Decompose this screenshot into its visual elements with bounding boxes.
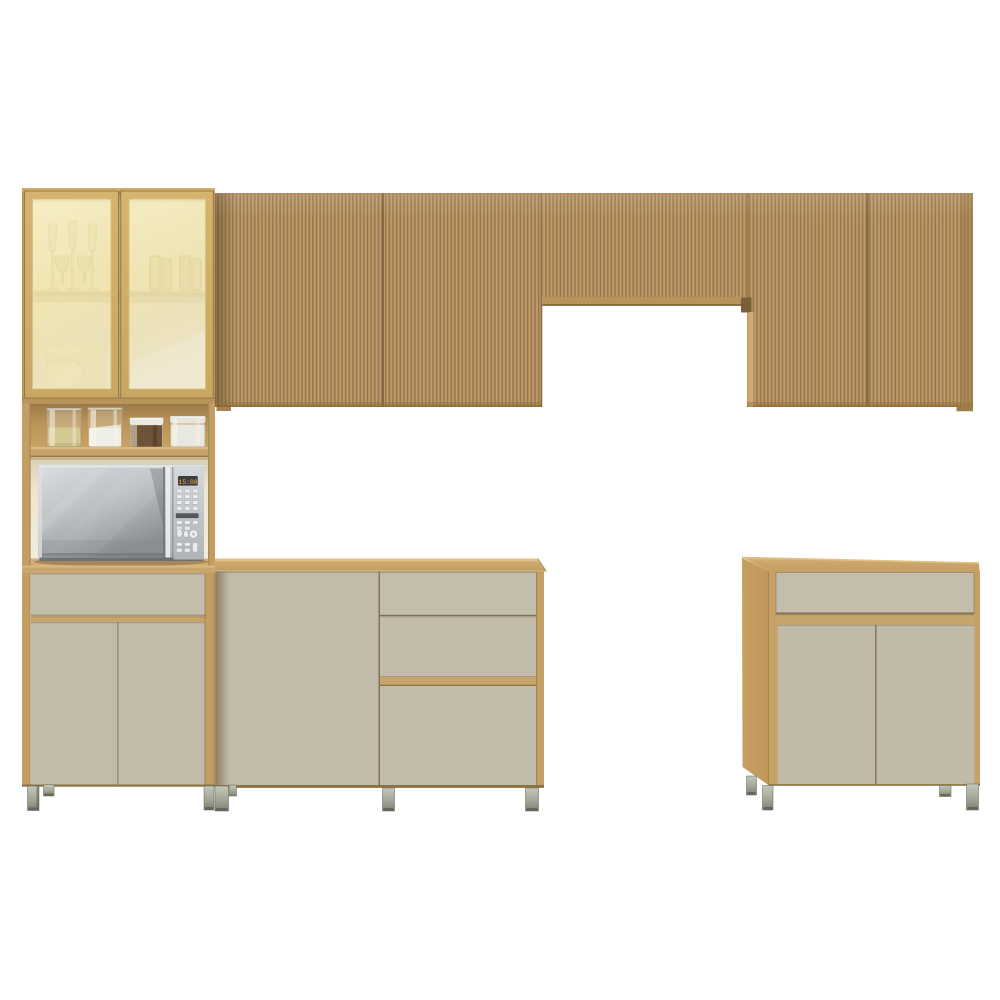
svg-text:15:08: 15:08: [178, 479, 197, 486]
